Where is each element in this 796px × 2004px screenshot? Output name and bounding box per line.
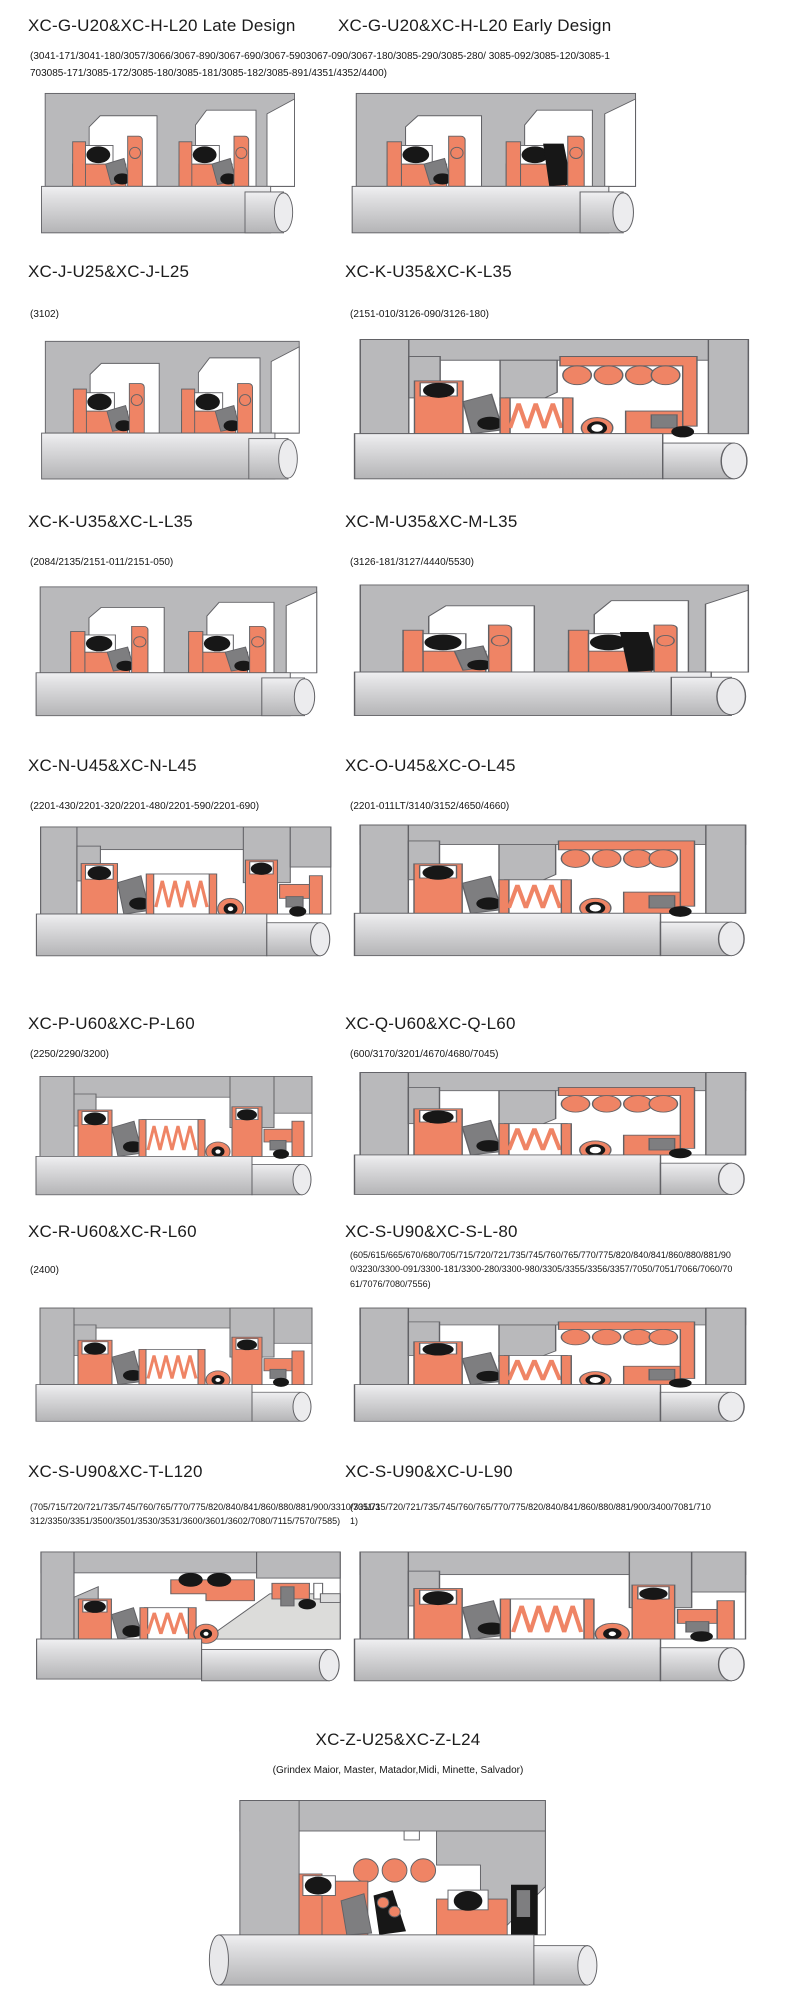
partnumbers-xc-g-h: (3041-171/3041-180/3057/3066/3067-890/30… xyxy=(30,48,610,82)
partnumbers-xc-n: (2201-430/2201-320/2201-480/2201-590/220… xyxy=(30,798,370,815)
seal-cross-section-diagram xyxy=(30,1302,330,1432)
seal-cross-section-diagram xyxy=(30,580,335,726)
partnumbers-xc-s-l80: (605/615/665/670/680/705/715/720/721/735… xyxy=(350,1248,735,1291)
seal-cross-section-diagram xyxy=(30,1070,330,1206)
partnumbers-xc-m: (3126-181/3127/4440/5530) xyxy=(350,554,650,571)
seal-cross-section-diagram xyxy=(346,1066,771,1206)
catalog-page: XC-G-U20&XC-H-L20 Late Design XC-G-U20&X… xyxy=(0,0,796,2004)
partnumbers-xc-p: (2250/2290/3200) xyxy=(30,1046,270,1063)
seal-cross-section-diagram xyxy=(346,1302,771,1432)
seal-cross-section-diagram xyxy=(346,818,771,968)
partnumbers-xc-t: (705/715/720/721/735/745/760/765/770/775… xyxy=(30,1500,385,1529)
title-xc-t: XC-S-U90&XC-T-L120 xyxy=(28,1462,203,1482)
seal-cross-section-diagram xyxy=(36,334,316,490)
partnumbers-xc-z: (Grindex Maior, Master, Matador,Midi, Mi… xyxy=(148,1762,648,1779)
title-xc-s-l80: XC-S-U90&XC-S-L-80 xyxy=(345,1222,518,1242)
title-xc-g-h-early: XC-G-U20&XC-H-L20 Early Design xyxy=(338,16,611,36)
partnumbers-xc-q: (600/3170/3201/4670/4680/7045) xyxy=(350,1046,670,1063)
title-xc-z: XC-Z-U25&XC-Z-L24 xyxy=(178,1730,618,1750)
title-xc-o: XC-O-U45&XC-O-L45 xyxy=(345,756,516,776)
title-xc-m: XC-M-U35&XC-M-L35 xyxy=(345,512,518,532)
seal-cross-section-diagram xyxy=(346,86,654,244)
title-xc-r: XC-R-U60&XC-R-L60 xyxy=(28,1222,197,1242)
title-xc-g-h-late: XC-G-U20&XC-H-L20 Late Design xyxy=(28,16,296,36)
title-xc-u: XC-S-U90&XC-U-L90 xyxy=(345,1462,513,1482)
title-xc-n: XC-N-U45&XC-N-L45 xyxy=(28,756,197,776)
seal-cross-section-diagram xyxy=(36,86,311,244)
title-xc-k-l: XC-K-U35&XC-L-L35 xyxy=(28,512,193,532)
seal-cross-section-diagram xyxy=(346,578,774,726)
seal-cross-section-diagram xyxy=(30,820,350,968)
partnumbers-xc-j: (3102) xyxy=(30,306,250,323)
partnumbers-xc-o: (2201-011LT/3140/3152/4650/4660) xyxy=(350,798,650,815)
seal-cross-section-diagram xyxy=(30,1545,360,1693)
title-xc-p: XC-P-U60&XC-P-L60 xyxy=(28,1014,195,1034)
partnumbers-xc-k-l: (2084/2135/2151-011/2151-050) xyxy=(30,554,330,571)
seal-cross-section-diagram xyxy=(346,1545,771,1693)
title-xc-q: XC-Q-U60&XC-Q-L60 xyxy=(345,1014,516,1034)
partnumbers-xc-k: (2151-010/3126-090/3126-180) xyxy=(350,306,650,323)
seal-cross-section-diagram xyxy=(346,332,774,492)
partnumbers-xc-r: (2400) xyxy=(30,1262,170,1279)
partnumbers-xc-u: (705/715/720/721/735/745/760/765/770/775… xyxy=(350,1500,715,1529)
title-xc-j: XC-J-U25&XC-J-L25 xyxy=(28,262,189,282)
seal-cross-section-diagram xyxy=(196,1788,616,1994)
title-xc-k: XC-K-U35&XC-K-L35 xyxy=(345,262,512,282)
